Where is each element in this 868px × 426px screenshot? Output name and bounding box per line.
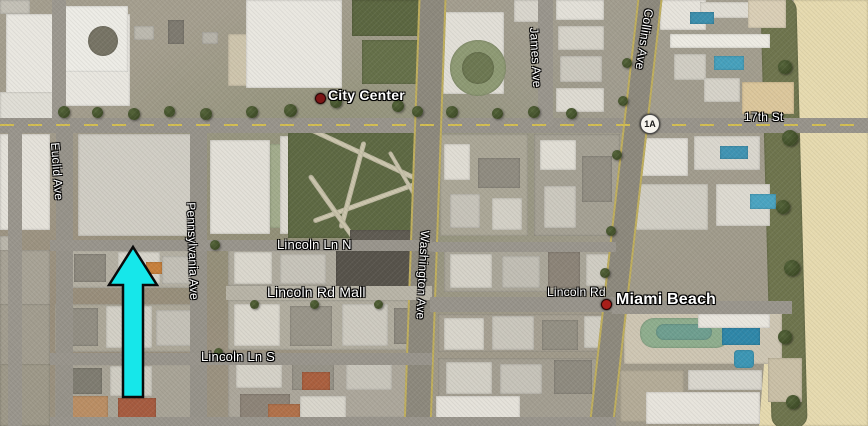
city-center-marker[interactable] — [315, 93, 326, 104]
street-label: Washington Ave — [413, 230, 432, 319]
street-label: Pennsylvania Ave — [184, 202, 201, 300]
street-label: Lincoln Ln N — [277, 237, 352, 252]
street-label: Lincoln Rd — [547, 285, 606, 299]
street-label: 17th St — [744, 110, 783, 124]
satellite-map-canvas[interactable]: 17th StCollins AveJames AveWashington Av… — [0, 0, 868, 426]
street-label: Lincoln Ln S — [201, 349, 275, 364]
route-shield-a1a: 1A — [640, 114, 660, 134]
map-labels-layer: 17th StCollins AveJames AveWashington Av… — [0, 0, 868, 426]
place-label: Miami Beach — [616, 291, 716, 309]
street-label: Collins Ave — [633, 8, 656, 71]
street-label: Euclid Ave — [48, 142, 66, 201]
miami-beach-marker[interactable] — [601, 299, 612, 310]
street-label: James Ave — [527, 27, 544, 88]
place-label: City Center — [328, 87, 405, 103]
street-label: Lincoln Rd Mall — [267, 284, 366, 300]
